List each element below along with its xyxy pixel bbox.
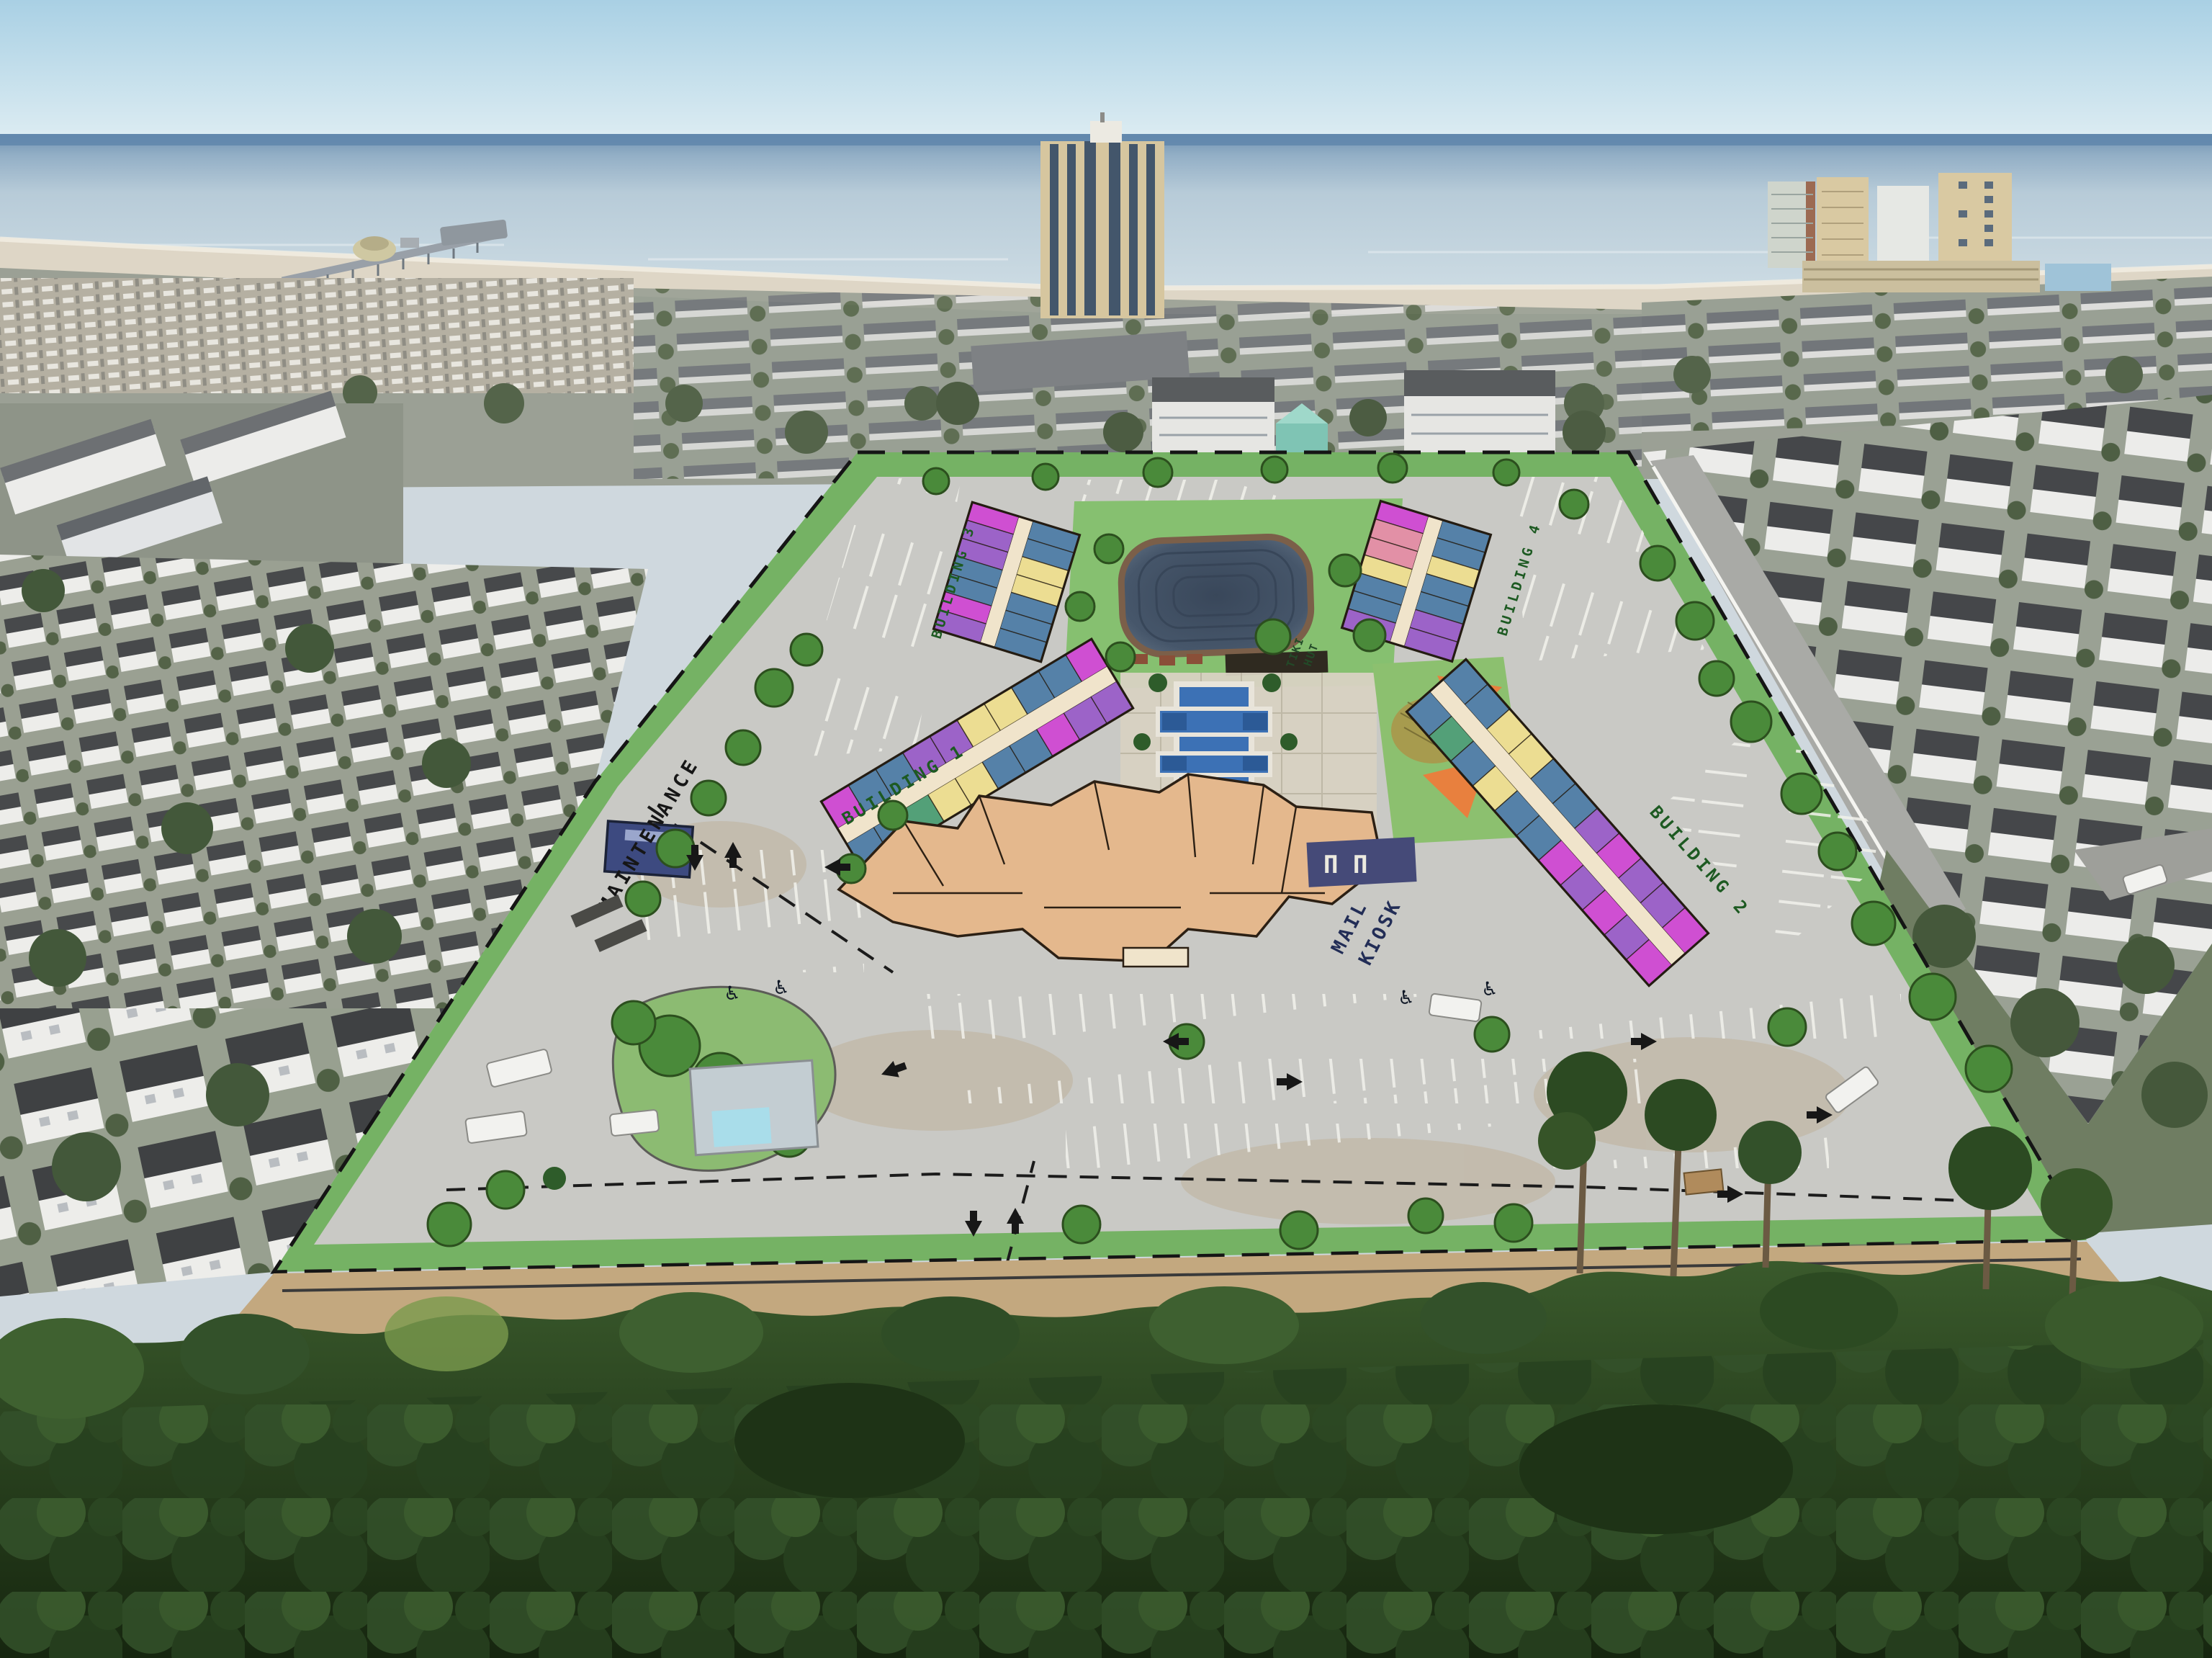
white-car xyxy=(610,1110,660,1137)
handicap-parking-icon: ♿ xyxy=(1483,976,1496,1001)
handicap-parking-icon: ♿ xyxy=(1400,985,1413,1010)
blue-building xyxy=(2045,264,2111,291)
handicap-parking-icon: ♿ xyxy=(726,980,739,1005)
handicap-parking-icon: ♿ xyxy=(775,974,788,1000)
parking-deck xyxy=(1802,261,2040,292)
aerial-photo: TIKI HUT xyxy=(0,0,2212,1658)
beachfront-highrise xyxy=(1040,112,1164,318)
rv-park xyxy=(0,278,634,393)
sky xyxy=(0,0,2212,138)
tower-roof-cap xyxy=(1090,121,1122,143)
pergola-structures: Π Π xyxy=(1323,851,1367,879)
